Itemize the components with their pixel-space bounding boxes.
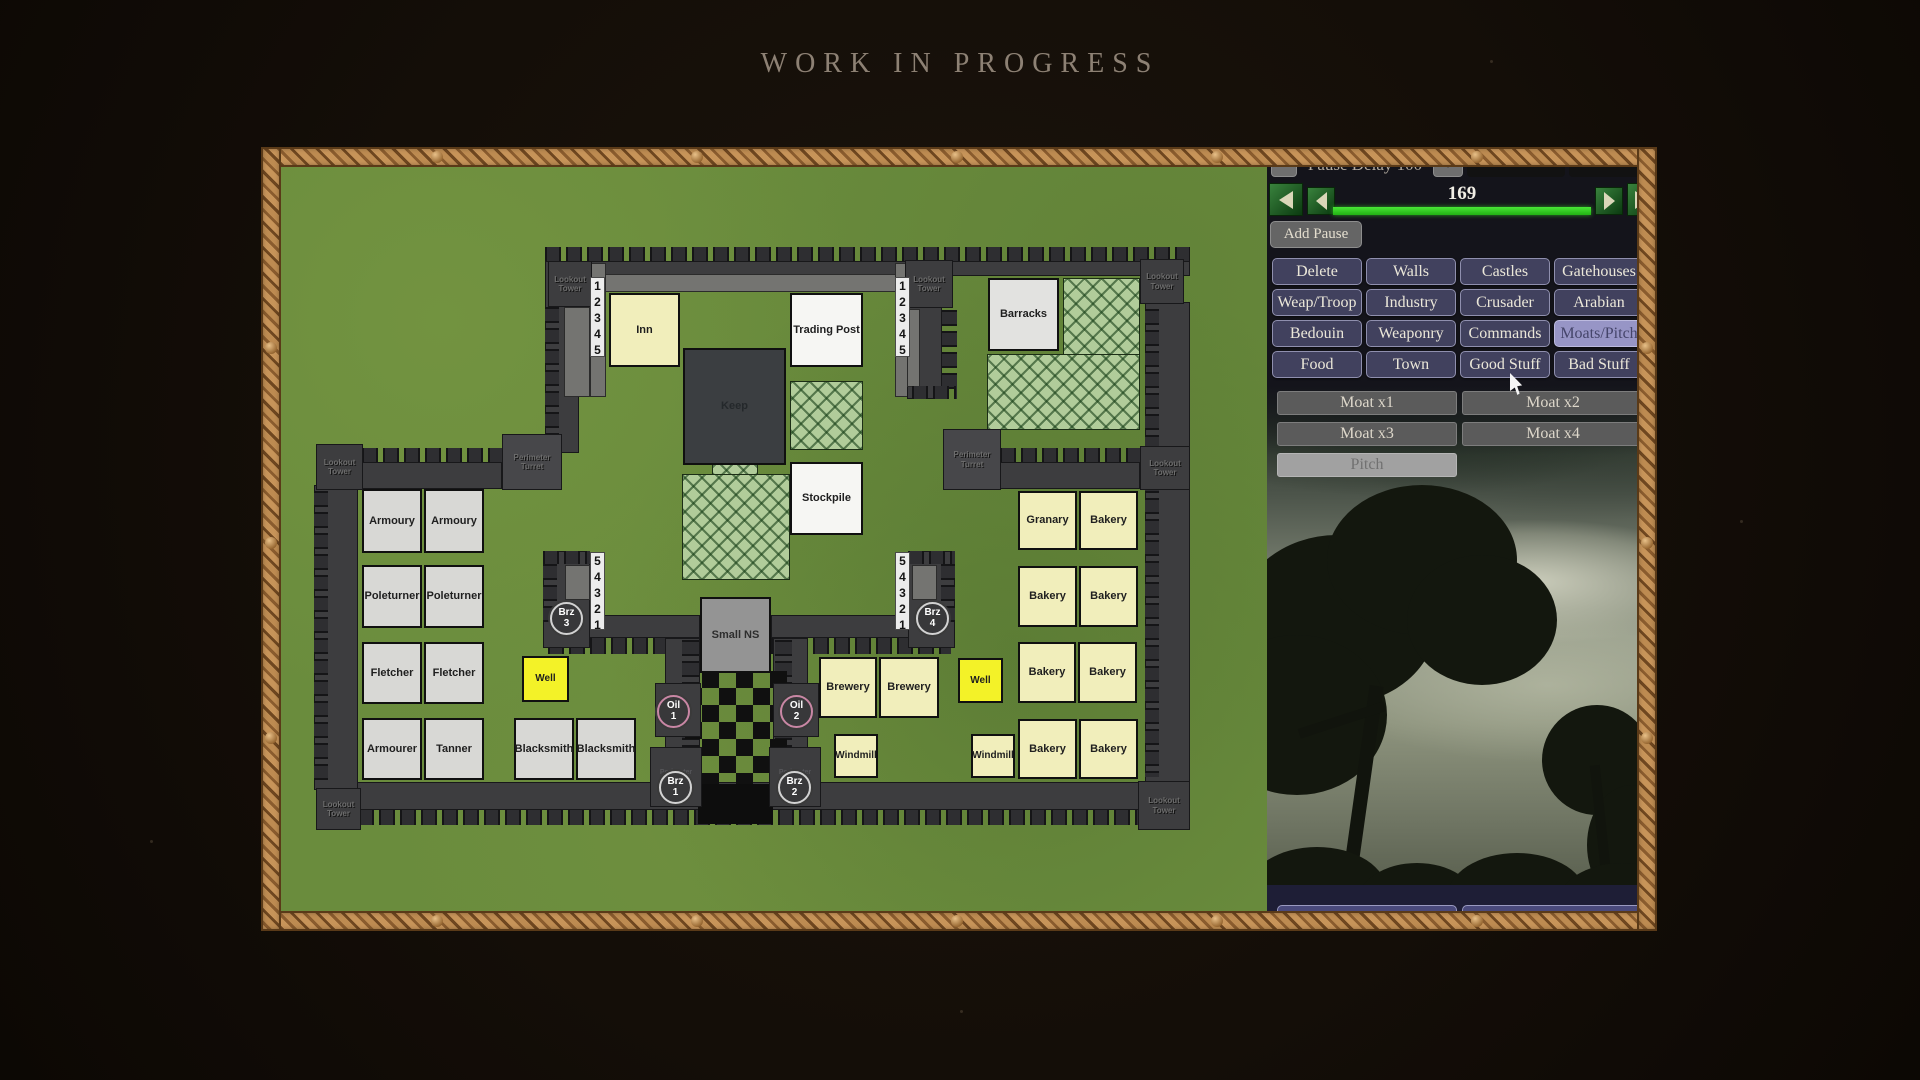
- building-fletcher[interactable]: Fletcher: [362, 642, 422, 704]
- building-label: Poleturner: [364, 590, 419, 603]
- category-arabian[interactable]: Arabian: [1554, 289, 1644, 316]
- building-keep[interactable]: Keep: [683, 348, 786, 465]
- tool-panel: - Pause Delay 100 + Zoom 5x Scroll 2x 16…: [1267, 147, 1657, 931]
- building-bakery[interactable]: Bakery: [1018, 566, 1077, 627]
- building-label: Well: [535, 673, 555, 685]
- wall-walkway: [912, 565, 937, 600]
- oil-marker[interactable]: Oil1: [657, 695, 690, 728]
- building-brewery[interactable]: Brewery: [879, 657, 939, 718]
- lookout-tower: Lookout Tower: [316, 788, 361, 830]
- marker-name: Oil: [790, 701, 803, 712]
- brazier-marker[interactable]: Brz2: [778, 771, 811, 804]
- tree-silhouette: [1407, 555, 1557, 685]
- wall-crenellation: [942, 310, 957, 394]
- category-walls[interactable]: Walls: [1366, 258, 1456, 285]
- wall-walkway: [565, 565, 590, 600]
- frame-stud: [265, 342, 277, 354]
- frame-stud: [951, 915, 963, 927]
- wall-crenellation: [1145, 309, 1159, 777]
- category-delete[interactable]: Delete: [1272, 258, 1362, 285]
- brazier-marker[interactable]: Brz4: [916, 602, 949, 635]
- dust-speck: [960, 1010, 963, 1013]
- screen: WORK IN PROGRESS: [0, 0, 1920, 1080]
- marker-number: 2: [794, 712, 800, 723]
- pitch-patch: [987, 354, 1140, 430]
- marker-name: Brz: [558, 608, 574, 619]
- frame-stud: [1471, 915, 1483, 927]
- step-counter: 169: [1367, 183, 1557, 205]
- dust-speck: [150, 840, 153, 843]
- brazier-marker[interactable]: Brz1: [659, 771, 692, 804]
- marker-number: 2: [792, 788, 798, 799]
- building-label: Bakery: [1029, 743, 1066, 756]
- frame-stud: [1641, 537, 1653, 549]
- wall-crenellation: [545, 307, 559, 451]
- moat-x3-button[interactable]: Moat x3: [1277, 422, 1457, 446]
- wall-crenellation: [543, 551, 590, 564]
- building-well[interactable]: Well: [958, 658, 1003, 703]
- building-label: Barracks: [1000, 308, 1047, 321]
- category-industry[interactable]: Industry: [1366, 289, 1456, 316]
- building-label: Armoury: [431, 515, 477, 528]
- marker-name: Brz: [786, 777, 802, 788]
- marker-number: 1: [673, 788, 679, 799]
- building-trading-post[interactable]: Trading Post: [790, 293, 863, 367]
- lookout-tower: Lookout Tower: [1140, 446, 1190, 490]
- building-label: Bakery: [1029, 590, 1066, 603]
- moat-x2-button[interactable]: Moat x2: [1462, 391, 1644, 415]
- frame-stud: [1641, 342, 1653, 354]
- frame-stud: [691, 915, 703, 927]
- frame-stud: [691, 151, 703, 163]
- wall-crenellation: [314, 491, 328, 785]
- building-barracks[interactable]: Barracks: [988, 278, 1059, 351]
- lookout-tower: Lookout Tower: [316, 444, 363, 490]
- wall-crenellation: [908, 551, 955, 564]
- frame-stud: [265, 732, 277, 744]
- wall-walkway: [592, 274, 927, 292]
- building-stockpile[interactable]: Stockpile: [790, 462, 863, 535]
- frame-stud: [1211, 151, 1223, 163]
- step-forward-button[interactable]: [1595, 187, 1623, 215]
- left-arrow-icon: [1279, 191, 1293, 209]
- lookout-tower: Lookout Tower: [1140, 259, 1184, 304]
- perimeter-turret: Perimeter Turret: [502, 434, 562, 490]
- frame-stud: [265, 537, 277, 549]
- building-label: Bakery: [1090, 590, 1127, 603]
- building-label: Poleturner: [426, 590, 481, 603]
- frame-stud: [951, 151, 963, 163]
- aiv-editor-window: Perimeter Turret Perimeter Turret Lookou…: [261, 147, 1657, 931]
- pitch-button[interactable]: Pitch: [1277, 453, 1457, 477]
- page-title: WORK IN PROGRESS: [0, 48, 1920, 80]
- gate-passage: [698, 784, 773, 824]
- category-food[interactable]: Food: [1272, 351, 1362, 378]
- building-poleturner[interactable]: Poleturner: [424, 565, 484, 628]
- castle-map[interactable]: Perimeter Turret Perimeter Turret Lookou…: [261, 147, 1267, 931]
- building-label: Armourer: [367, 743, 417, 756]
- marker-number: 1: [671, 712, 677, 723]
- category-moats-pitch[interactable]: Moats/Pitch: [1554, 320, 1644, 347]
- frame-stud: [1471, 151, 1483, 163]
- building-small-gatehouse[interactable]: Small NS: [700, 597, 771, 673]
- building-poleturner[interactable]: Poleturner: [362, 565, 422, 628]
- building-label: Inn: [636, 324, 653, 337]
- building-inn[interactable]: Inn: [609, 293, 680, 367]
- building-label: Brewery: [887, 681, 930, 694]
- lookout-tower: Lookout Tower: [1138, 781, 1190, 830]
- perimeter-turret: Perimeter Turret: [943, 429, 1001, 490]
- marker-number: 4: [930, 619, 936, 630]
- building-label: Bakery: [1089, 666, 1126, 679]
- oil-marker[interactable]: Oil2: [780, 695, 813, 728]
- category-weap-troop[interactable]: Weap/Troop: [1272, 289, 1362, 316]
- building-label: Well: [970, 675, 990, 687]
- category-gatehouses[interactable]: Gatehouses: [1554, 258, 1644, 285]
- category-bedouin[interactable]: Bedouin: [1272, 320, 1362, 347]
- building-armoury[interactable]: Armoury: [362, 489, 422, 553]
- building-label: Blacksmith: [515, 743, 574, 756]
- building-label: Windmill: [835, 750, 877, 762]
- wall-crenellation: [1000, 448, 1140, 462]
- progress-bar: [1333, 207, 1591, 215]
- category-town[interactable]: Town: [1366, 351, 1456, 378]
- marker-number: 3: [564, 619, 570, 630]
- building-granary[interactable]: Granary: [1018, 491, 1077, 550]
- building-brewery[interactable]: Brewery: [819, 657, 877, 718]
- building-label: Bakery: [1090, 514, 1127, 527]
- frame-stud: [1211, 915, 1223, 927]
- building-windmill[interactable]: Windmill: [834, 734, 878, 778]
- building-bakery[interactable]: Bakery: [1018, 642, 1076, 703]
- building-label: Windmill: [972, 750, 1014, 762]
- building-label: Blacksmith: [577, 743, 636, 756]
- wall-annex-top: [362, 462, 502, 489]
- moat-x4-button[interactable]: Moat x4: [1462, 422, 1644, 446]
- step-back-button[interactable]: [1307, 187, 1335, 215]
- building-label: Fletcher: [371, 667, 414, 680]
- building-windmill[interactable]: Windmill: [971, 734, 1015, 778]
- category-crusader[interactable]: Crusader: [1460, 289, 1550, 316]
- category-weaponry[interactable]: Weaponry: [1366, 320, 1456, 347]
- marker-name: Brz: [667, 777, 683, 788]
- tile-count-strip: 54321: [590, 552, 605, 630]
- wall-walkway: [564, 307, 590, 397]
- building-well[interactable]: Well: [522, 656, 569, 702]
- left-arrow-icon: [1316, 192, 1327, 210]
- lookout-tower: Lookout Tower: [548, 261, 592, 307]
- building-label: Tanner: [436, 743, 472, 756]
- moat-x1-button[interactable]: Moat x1: [1277, 391, 1457, 415]
- building-bakery[interactable]: Bakery: [1079, 491, 1138, 550]
- building-label: Fletcher: [433, 667, 476, 680]
- wall-connector-right: [1000, 462, 1140, 489]
- dust-speck: [1740, 520, 1743, 523]
- lookout-tower: Lookout Tower: [905, 260, 953, 308]
- pitch-patch: [682, 474, 790, 580]
- building-bakery[interactable]: Bakery: [1078, 642, 1137, 703]
- wall-crenellation: [362, 448, 502, 462]
- building-label: Brewery: [826, 681, 869, 694]
- marker-name: Oil: [667, 701, 680, 712]
- right-arrow-icon: [1604, 192, 1615, 210]
- building-bakery[interactable]: Bakery: [1079, 566, 1138, 627]
- building-blacksmith[interactable]: Blacksmith: [514, 718, 574, 780]
- building-bakery[interactable]: Bakery: [1079, 719, 1138, 779]
- building-armourer[interactable]: Armourer: [362, 718, 422, 780]
- building-tanner[interactable]: Tanner: [424, 718, 484, 780]
- building-fletcher[interactable]: Fletcher: [424, 642, 484, 704]
- category-commands[interactable]: Commands: [1460, 320, 1550, 347]
- frame-stud: [431, 151, 443, 163]
- building-label: Bakery: [1029, 666, 1066, 679]
- wall-crenellation: [912, 386, 957, 399]
- category-bad-stuff[interactable]: Bad Stuff: [1554, 351, 1644, 378]
- building-blacksmith[interactable]: Blacksmith: [576, 718, 636, 780]
- building-armoury[interactable]: Armoury: [424, 489, 484, 553]
- building-label: Keep: [721, 400, 748, 413]
- pitch-patch: [790, 381, 863, 450]
- building-label: Bakery: [1090, 743, 1127, 756]
- add-pause-button[interactable]: Add Pause: [1270, 221, 1362, 248]
- frame-stud: [1641, 732, 1653, 744]
- tile-count-strip: 12345: [590, 277, 605, 357]
- building-label: Small NS: [712, 629, 760, 642]
- marker-name: Brz: [924, 608, 940, 619]
- frame-stud: [431, 915, 443, 927]
- step-first-button[interactable]: [1269, 183, 1303, 216]
- building-label: Armoury: [369, 515, 415, 528]
- category-castles[interactable]: Castles: [1460, 258, 1550, 285]
- building-label: Granary: [1026, 514, 1068, 527]
- building-label: Stockpile: [802, 492, 851, 505]
- category-good-stuff[interactable]: Good Stuff: [1460, 351, 1550, 378]
- building-bakery[interactable]: Bakery: [1018, 719, 1077, 779]
- brazier-marker[interactable]: Brz3: [550, 602, 583, 635]
- tile-count-strip: 12345: [895, 277, 910, 357]
- building-label: Trading Post: [793, 324, 860, 337]
- tile-count-strip: 54321: [895, 552, 910, 630]
